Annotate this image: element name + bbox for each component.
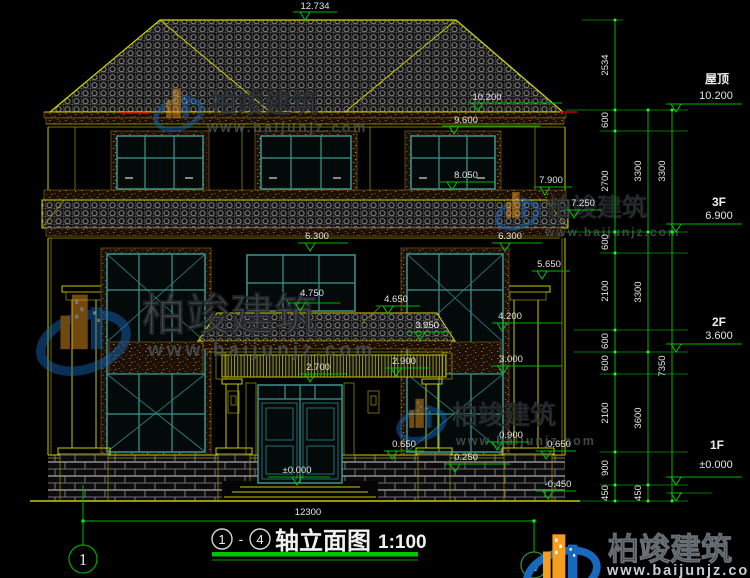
svg-text:1F: 1F xyxy=(710,438,724,452)
svg-text:600: 600 xyxy=(600,333,611,349)
pedestal-canopy-right xyxy=(416,448,452,501)
overall-width-text: 12300 xyxy=(295,507,321,518)
svg-text:2.900: 2.900 xyxy=(392,356,416,367)
elevation-canvas: 柏竣建筑 www.baijunjz.com 柏竣建筑 www.baijunjz.… xyxy=(0,0,750,578)
svg-text:6.900: 6.900 xyxy=(705,210,733,222)
svg-text:0.900: 0.900 xyxy=(499,430,523,441)
svg-text:9.600: 9.600 xyxy=(454,115,478,126)
svg-text:±0.000: ±0.000 xyxy=(699,459,733,471)
pedestal-right-corner xyxy=(502,448,554,501)
svg-text:2100: 2100 xyxy=(600,280,611,301)
watermark-url: www.baijunjz.com xyxy=(147,340,376,361)
svg-text:7350: 7350 xyxy=(657,355,668,376)
marker-12734: 12.734 xyxy=(293,1,337,20)
title-axis-start: 1 xyxy=(218,532,225,547)
svg-text:3300: 3300 xyxy=(633,160,644,181)
title-block: 1 - 4 轴立面图 1:100 xyxy=(212,527,427,560)
svg-text:900: 900 xyxy=(600,460,611,476)
svg-text:6.300: 6.300 xyxy=(305,231,329,242)
window-3f-left xyxy=(111,131,209,193)
watermark-brand: 柏竣建筑 xyxy=(547,193,647,222)
svg-text:4.650: 4.650 xyxy=(384,294,408,305)
dimension-chains: 2534 600 2700 600 2100 600 600 2100 900 … xyxy=(566,19,688,503)
svg-text:12.734: 12.734 xyxy=(300,1,329,12)
wall-lamp-left xyxy=(228,391,239,413)
svg-text:600: 600 xyxy=(600,234,611,250)
svg-text:10.200: 10.200 xyxy=(472,92,501,103)
drawing-scale: 1:100 xyxy=(378,532,427,553)
svg-text:屋顶: 屋顶 xyxy=(705,72,729,86)
svg-text:2534: 2534 xyxy=(600,54,611,75)
svg-text:450: 450 xyxy=(600,485,611,501)
svg-text:4.750: 4.750 xyxy=(300,288,324,299)
svg-text:3600: 3600 xyxy=(633,407,644,428)
title-underline xyxy=(212,552,418,557)
entrance-steps xyxy=(222,481,378,501)
window-3f-center xyxy=(255,131,357,193)
svg-text:600: 600 xyxy=(600,355,611,371)
drawing-title: 轴立面图 xyxy=(275,527,371,555)
svg-text:±0.000: ±0.000 xyxy=(283,465,312,476)
chain-inner-labels: 2534 600 2700 600 2100 600 600 2100 900 … xyxy=(600,54,611,501)
wall-lamp-right xyxy=(368,391,379,413)
axis-bubble-1: 1 xyxy=(69,545,97,573)
pedestal-left-corner xyxy=(58,448,110,501)
svg-text:7.250: 7.250 xyxy=(571,198,595,209)
title-axis-end: 4 xyxy=(256,532,263,547)
brand-logo-block: 柏竣建筑 www.baijunjz.com xyxy=(521,532,750,578)
level-1f: 1F ±0.000 xyxy=(666,438,742,485)
svg-text:5.650: 5.650 xyxy=(537,259,561,270)
window-3f-right xyxy=(405,131,501,193)
svg-text:1: 1 xyxy=(79,550,88,569)
level-roof: 屋顶 10.200 xyxy=(666,72,742,112)
watermark-brand: 柏竣建筑 xyxy=(142,291,318,340)
watermark-brand: 柏竣建筑 xyxy=(210,88,318,119)
watermark-url: www.baijunjz.com xyxy=(455,434,596,448)
watermark-url: www.baijunjz.com xyxy=(206,119,368,135)
svg-text:2.700: 2.700 xyxy=(306,362,330,373)
level-2f: 2F 3.600 xyxy=(666,315,742,352)
canopy-column-left xyxy=(222,379,242,448)
svg-text:2100: 2100 xyxy=(600,402,611,423)
svg-text:3300: 3300 xyxy=(633,281,644,302)
svg-text:4.200: 4.200 xyxy=(498,311,522,322)
svg-text:-0.450: -0.450 xyxy=(545,479,572,490)
cad-elevation-drawing: 柏竣建筑 www.baijunjz.com 柏竣建筑 www.baijunjz.… xyxy=(0,0,750,578)
svg-text:450: 450 xyxy=(633,485,644,501)
svg-text:6.300: 6.300 xyxy=(498,231,522,242)
chain-nodes xyxy=(614,19,674,503)
svg-text:3.000: 3.000 xyxy=(499,354,523,365)
svg-text:0.650: 0.650 xyxy=(547,439,571,450)
svg-text:7.900: 7.900 xyxy=(539,175,563,186)
watermark-brand: 柏竣建筑 xyxy=(452,400,556,430)
svg-text:2700: 2700 xyxy=(600,170,611,191)
marker-5650: 5.650 xyxy=(532,259,570,279)
svg-text:3300: 3300 xyxy=(657,160,668,181)
brand-url: www.baijunjz.com xyxy=(606,563,750,578)
svg-text:3.600: 3.600 xyxy=(705,330,733,342)
svg-text:0.250: 0.250 xyxy=(454,452,478,463)
svg-text:0.650: 0.650 xyxy=(392,439,416,450)
third-floor xyxy=(48,127,565,193)
svg-text:8.050: 8.050 xyxy=(454,170,478,181)
right-level-labels: 屋顶 10.200 3F 6.900 2F 3.600 1F ±0.000 xyxy=(666,72,742,501)
svg-text:600: 600 xyxy=(600,112,611,128)
svg-text:3F: 3F xyxy=(712,195,726,209)
brand-name: 柏竣建筑 xyxy=(608,532,732,567)
svg-text:3.950: 3.950 xyxy=(415,320,439,331)
svg-text:10.200: 10.200 xyxy=(699,90,733,102)
svg-text:2F: 2F xyxy=(712,315,726,329)
title-separator: - xyxy=(239,531,244,547)
